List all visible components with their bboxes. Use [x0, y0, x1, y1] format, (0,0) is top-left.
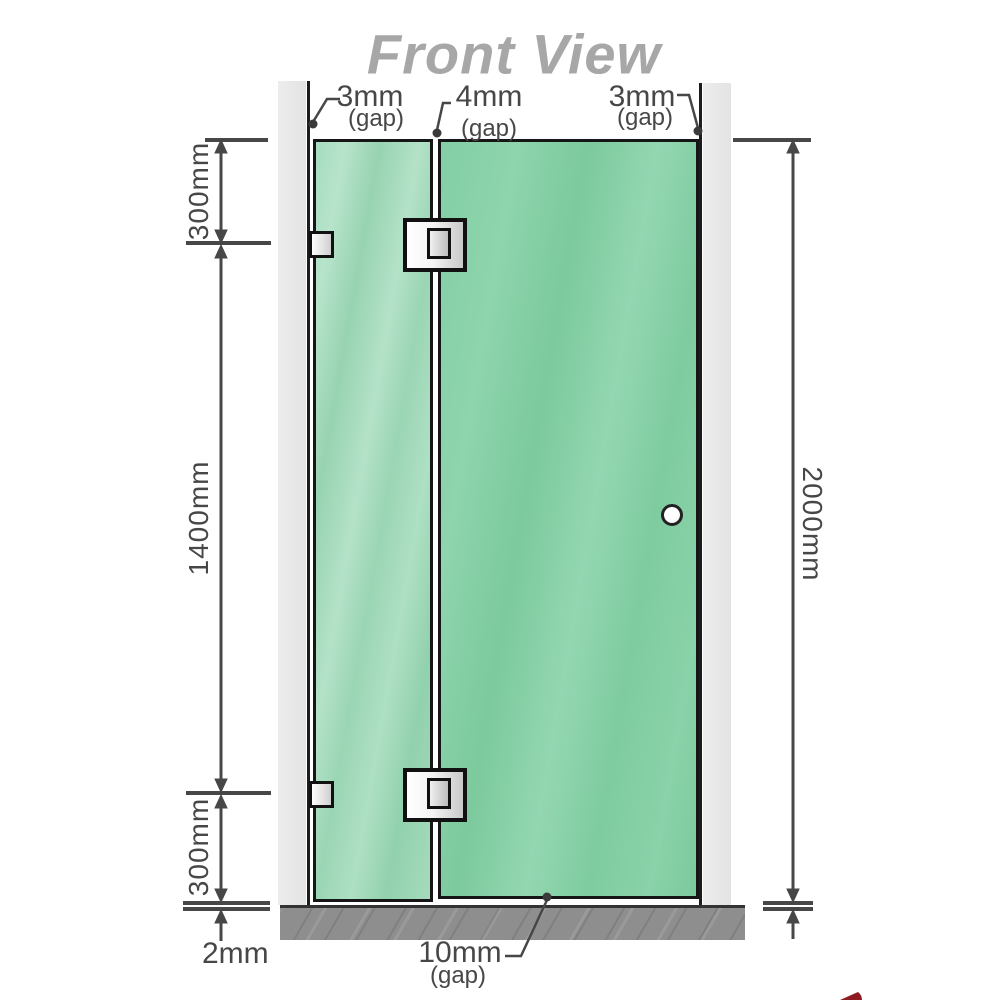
front-view-diagram: Front View: [0, 0, 1000, 1000]
dim-bottom-label: 300mm: [185, 798, 213, 896]
gap-middle-note: (gap): [461, 117, 517, 141]
arrow-down-icon: [215, 889, 227, 902]
arrow-up-icon: [215, 245, 227, 258]
dim-floor-label: 2mm: [202, 939, 269, 969]
gap-middle-value: 4mm: [456, 82, 523, 112]
leader-gap-middle: [437, 103, 451, 130]
dim-right-floor: [787, 910, 799, 939]
arrow-up-icon: [215, 795, 227, 808]
leader-dot: [433, 129, 442, 138]
leader-gap-right: [677, 95, 698, 128]
leader-gap-bottom: [505, 900, 547, 956]
leader-dot: [543, 893, 552, 902]
leader-dot: [694, 127, 703, 136]
arrow-up-icon: [215, 910, 227, 923]
arrow-down-icon: [215, 779, 227, 792]
dim-top-label: 300mm: [185, 142, 213, 240]
dim-total-label: 2000mm: [798, 467, 826, 582]
arrow-down-icon: [787, 889, 799, 902]
gap-left-note: (gap): [348, 107, 404, 131]
arrow-up-icon: [787, 910, 799, 923]
dim-left-bottom-300: [215, 795, 227, 902]
leader-dot: [309, 120, 318, 129]
gap-right-note: (gap): [617, 106, 673, 130]
logo-fragment: [840, 992, 862, 1000]
dim-left-top-300: [215, 140, 227, 243]
gap-bottom-note: (gap): [430, 964, 486, 988]
dimension-overlay: [0, 0, 1000, 1000]
dim-middle-label: 1400mm: [185, 461, 213, 576]
dim-left-middle-1400: [215, 245, 227, 792]
